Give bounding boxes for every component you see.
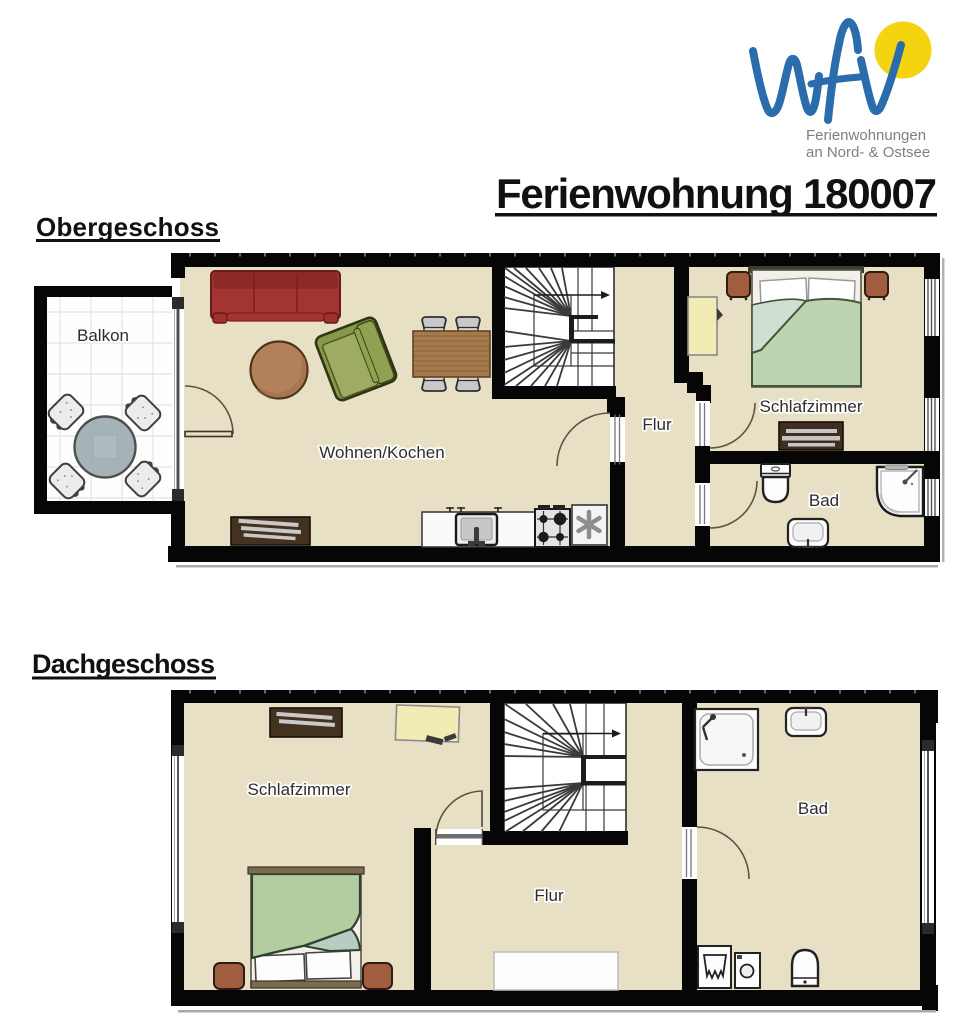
svg-text:Balkon: Balkon: [77, 326, 129, 345]
svg-text:Flur: Flur: [534, 886, 564, 905]
svg-text:Wohnen/Kochen: Wohnen/Kochen: [319, 443, 444, 462]
svg-text:Flur: Flur: [642, 415, 672, 434]
svg-text:Bad: Bad: [809, 491, 839, 510]
svg-text:Ferienwohnung 180007: Ferienwohnung 180007: [496, 170, 937, 217]
svg-text:Dachgeschoss: Dachgeschoss: [32, 649, 215, 679]
svg-text:an Nord- & Ostsee: an Nord- & Ostsee: [806, 144, 930, 161]
svg-text:Obergeschoss: Obergeschoss: [36, 212, 219, 242]
svg-text:Bad: Bad: [798, 799, 828, 818]
svg-text:Schlafzimmer: Schlafzimmer: [248, 780, 351, 799]
svg-text:Ferienwohnungen: Ferienwohnungen: [806, 127, 926, 144]
svg-text:Schlafzimmer: Schlafzimmer: [760, 397, 863, 416]
